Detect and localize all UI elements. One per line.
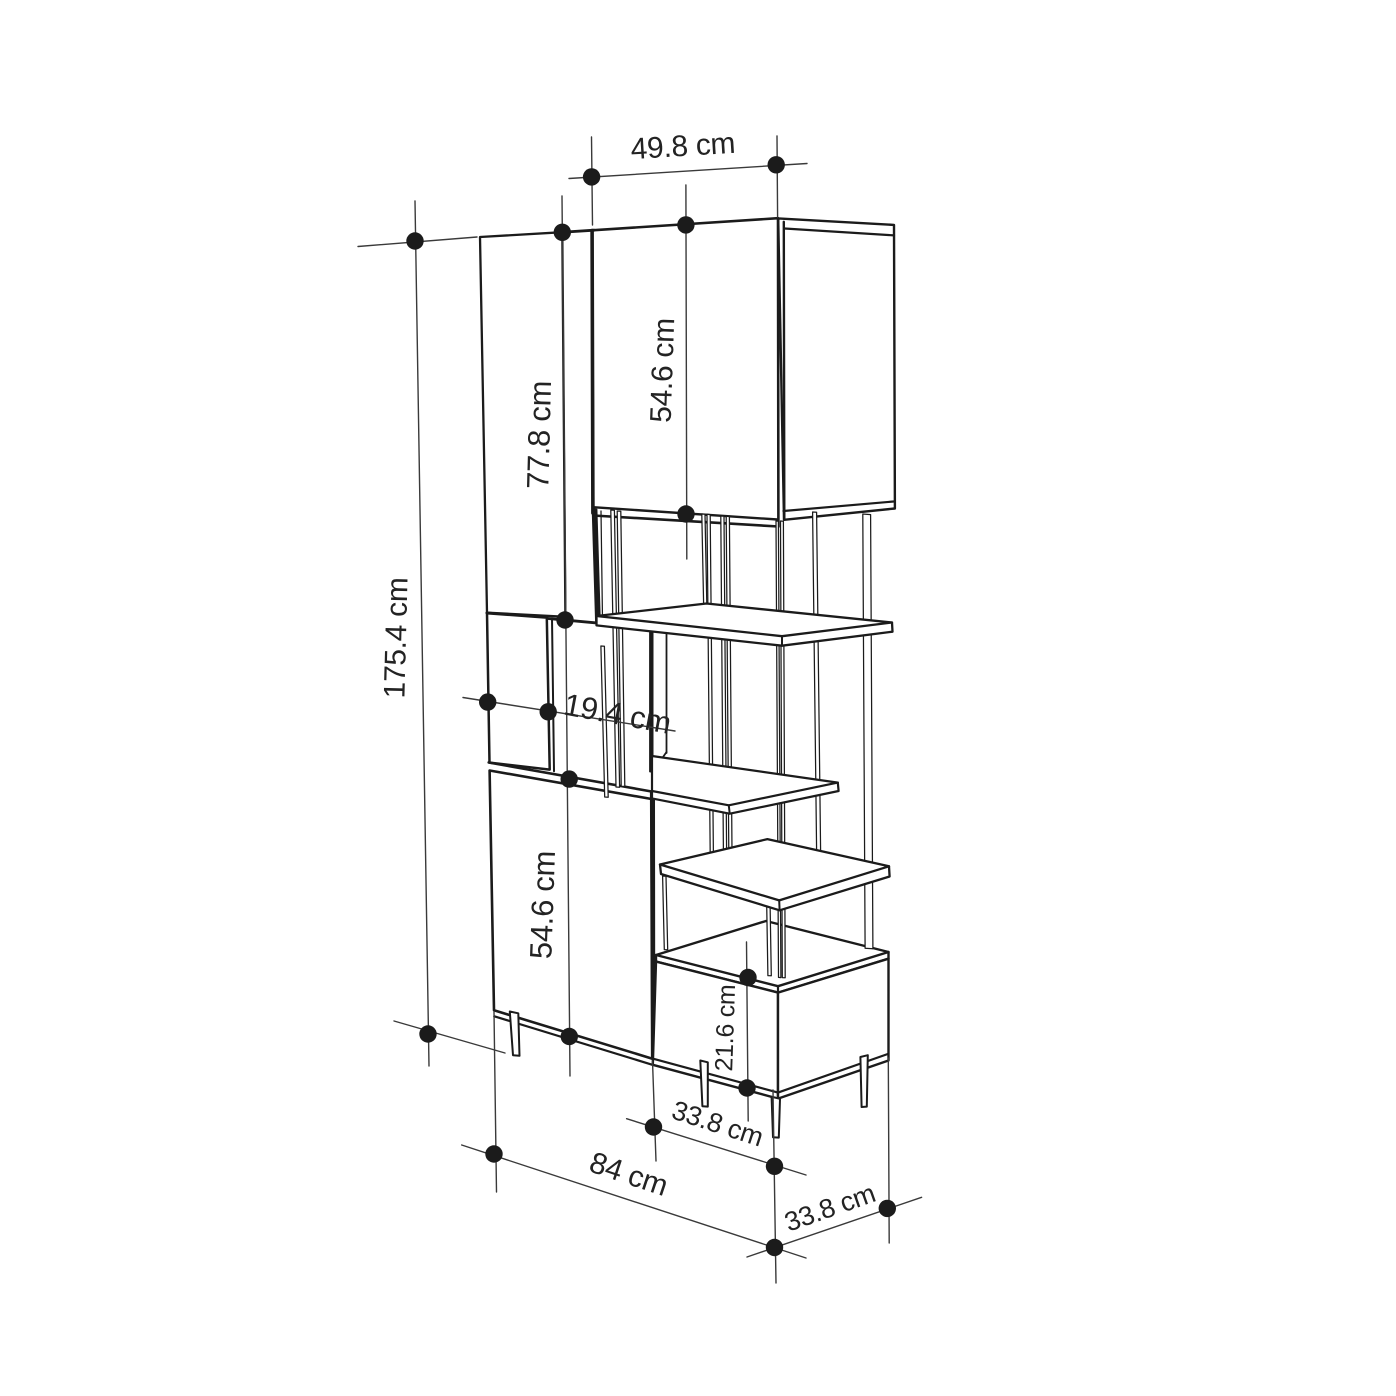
svg-text:54.6 cm: 54.6 cm (645, 318, 682, 424)
svg-text:54.6 cm: 54.6 cm (523, 850, 562, 959)
svg-text:49.8 cm: 49.8 cm (630, 127, 736, 166)
svg-text:175.4 cm: 175.4 cm (378, 577, 414, 699)
svg-text:77.8 cm: 77.8 cm (520, 380, 558, 489)
svg-text:21.6 cm: 21.6 cm (710, 984, 741, 1072)
